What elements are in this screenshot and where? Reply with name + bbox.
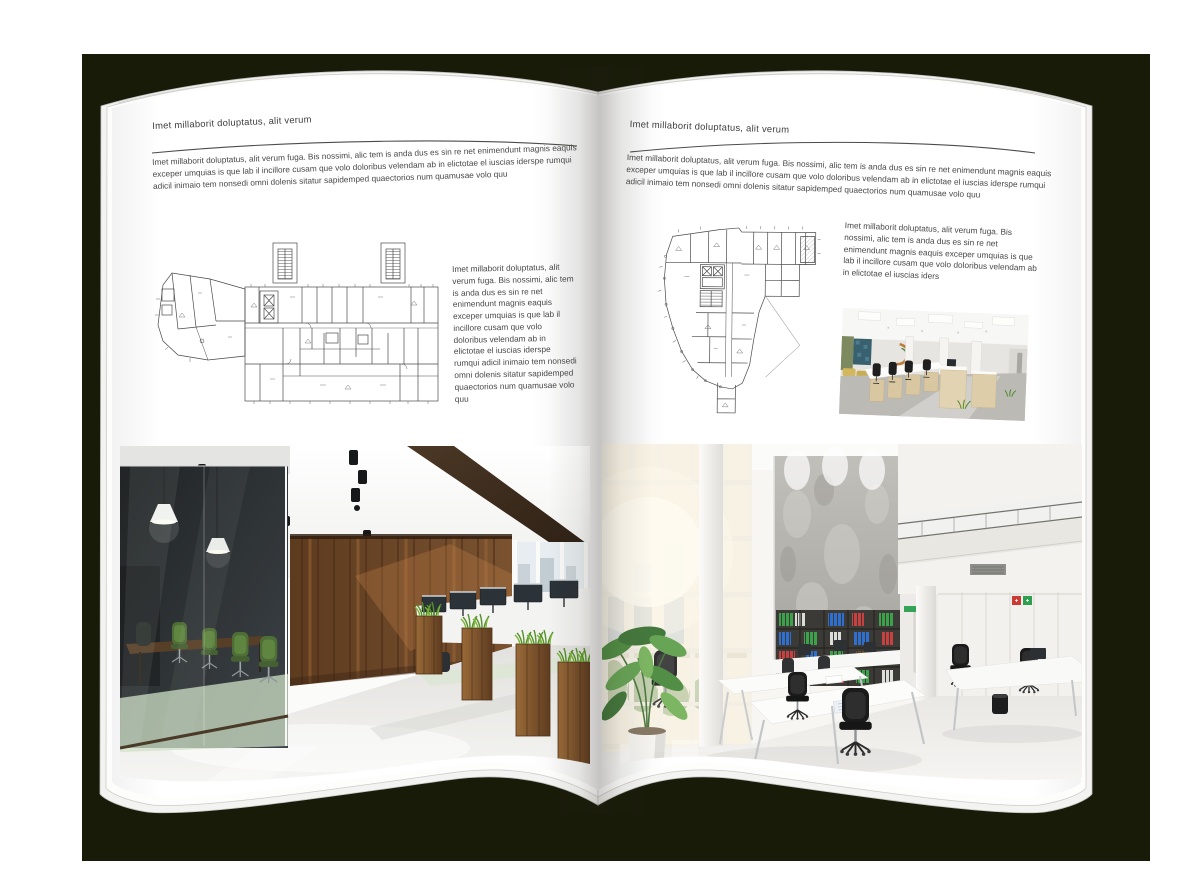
photo-office-small	[839, 308, 1029, 421]
floor-plan-left	[150, 229, 450, 419]
photo-office-atrium	[602, 444, 1082, 808]
floor-plan-right	[647, 216, 839, 418]
accent-wall	[853, 338, 872, 365]
cabinet	[971, 374, 996, 408]
meeting-room	[120, 466, 288, 752]
right-page-caption: Imet millaborit doluptatus, alit verum f…	[843, 220, 1043, 287]
plan-right-lines	[657, 225, 821, 413]
exit-sign	[904, 606, 916, 612]
plan-left-lines	[155, 243, 438, 404]
monitor	[947, 359, 956, 366]
left-page-caption: Imet millaborit doluptatus, alit verum f…	[452, 261, 579, 405]
mezzanine	[898, 444, 1082, 594]
photo-office-loft	[120, 446, 590, 798]
cabinet	[939, 370, 966, 409]
plant-wall	[841, 336, 854, 370]
